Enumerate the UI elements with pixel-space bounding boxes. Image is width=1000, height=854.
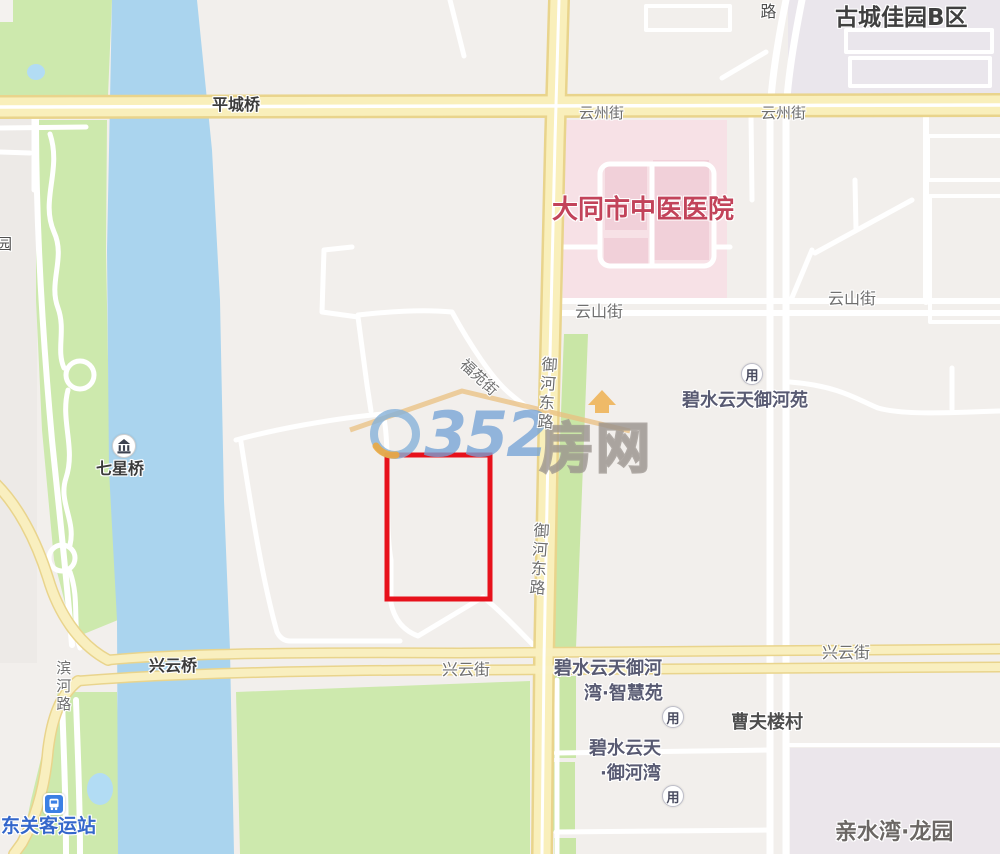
pond-north: [27, 64, 45, 80]
poi-glyph: 用: [666, 787, 679, 806]
museum-icon[interactable]: [112, 434, 136, 458]
bridge-label-xingyun: 兴云桥: [149, 657, 197, 675]
watermark-number: 352: [424, 398, 547, 471]
community-poi-icon[interactable]: 用: [662, 785, 684, 807]
bridge-label-pingcheng: 平城桥: [212, 96, 260, 114]
village-label-caofulou: 曹夫楼村: [731, 713, 803, 734]
poi-glyph: 用: [666, 708, 679, 727]
poi-label-hospital[interactable]: 大同市中医医院: [552, 196, 734, 226]
poi-label-bus-station[interactable]: 东关客运站: [1, 816, 96, 838]
community-label-yuhewan-line1[interactable]: 碧水云天: [589, 739, 661, 760]
community-label-zhihuiyuan-line1[interactable]: 碧水云天御河: [554, 659, 662, 680]
street-label-yunshan-w: 云山街: [575, 303, 623, 321]
poi-glyph: 用: [745, 365, 758, 384]
community-label-yuheyuan[interactable]: 碧水云天御河苑: [682, 391, 808, 412]
area-label-gucheng-jiayuan: 古城佳园B区: [835, 5, 968, 31]
community-label-yuhewan-line2[interactable]: ·御河湾: [600, 764, 661, 785]
pond-south: [87, 773, 113, 805]
map-viewport[interactable]: 352 房网 用 用 用 路 古城佳园B区 平城桥 云州街 云州街 大同市中医医…: [0, 0, 1000, 854]
park-label-fragment: 园: [0, 236, 12, 253]
bus-station-icon[interactable]: [43, 793, 65, 815]
area-label-qinshuiwan: 亲水湾·龙园: [835, 820, 953, 845]
road-label-binhe: 滨河路: [54, 660, 71, 714]
street-label-yunshan-e: 云山街: [828, 290, 876, 308]
watermark-text: 房网: [540, 404, 652, 483]
west-residential-strip: [0, 118, 37, 663]
street-label-xingyun-e: 兴云街: [822, 644, 870, 662]
community-poi-icon[interactable]: 用: [662, 706, 684, 728]
road-label-fragment: 路: [757, 3, 775, 22]
watermark-logo: [366, 404, 426, 464]
street-label-xingyun-w: 兴云街: [442, 661, 490, 679]
community-poi-icon[interactable]: 用: [741, 363, 763, 385]
street-label-yunzhou-w: 云州街: [579, 105, 624, 122]
bridge-label-qixing: 七星桥: [96, 460, 144, 478]
corner-building: [0, 0, 13, 22]
community-label-zhihuiyuan-line2[interactable]: 湾·智慧苑: [584, 684, 663, 705]
street-label-yunzhou-e: 云州街: [761, 105, 806, 122]
